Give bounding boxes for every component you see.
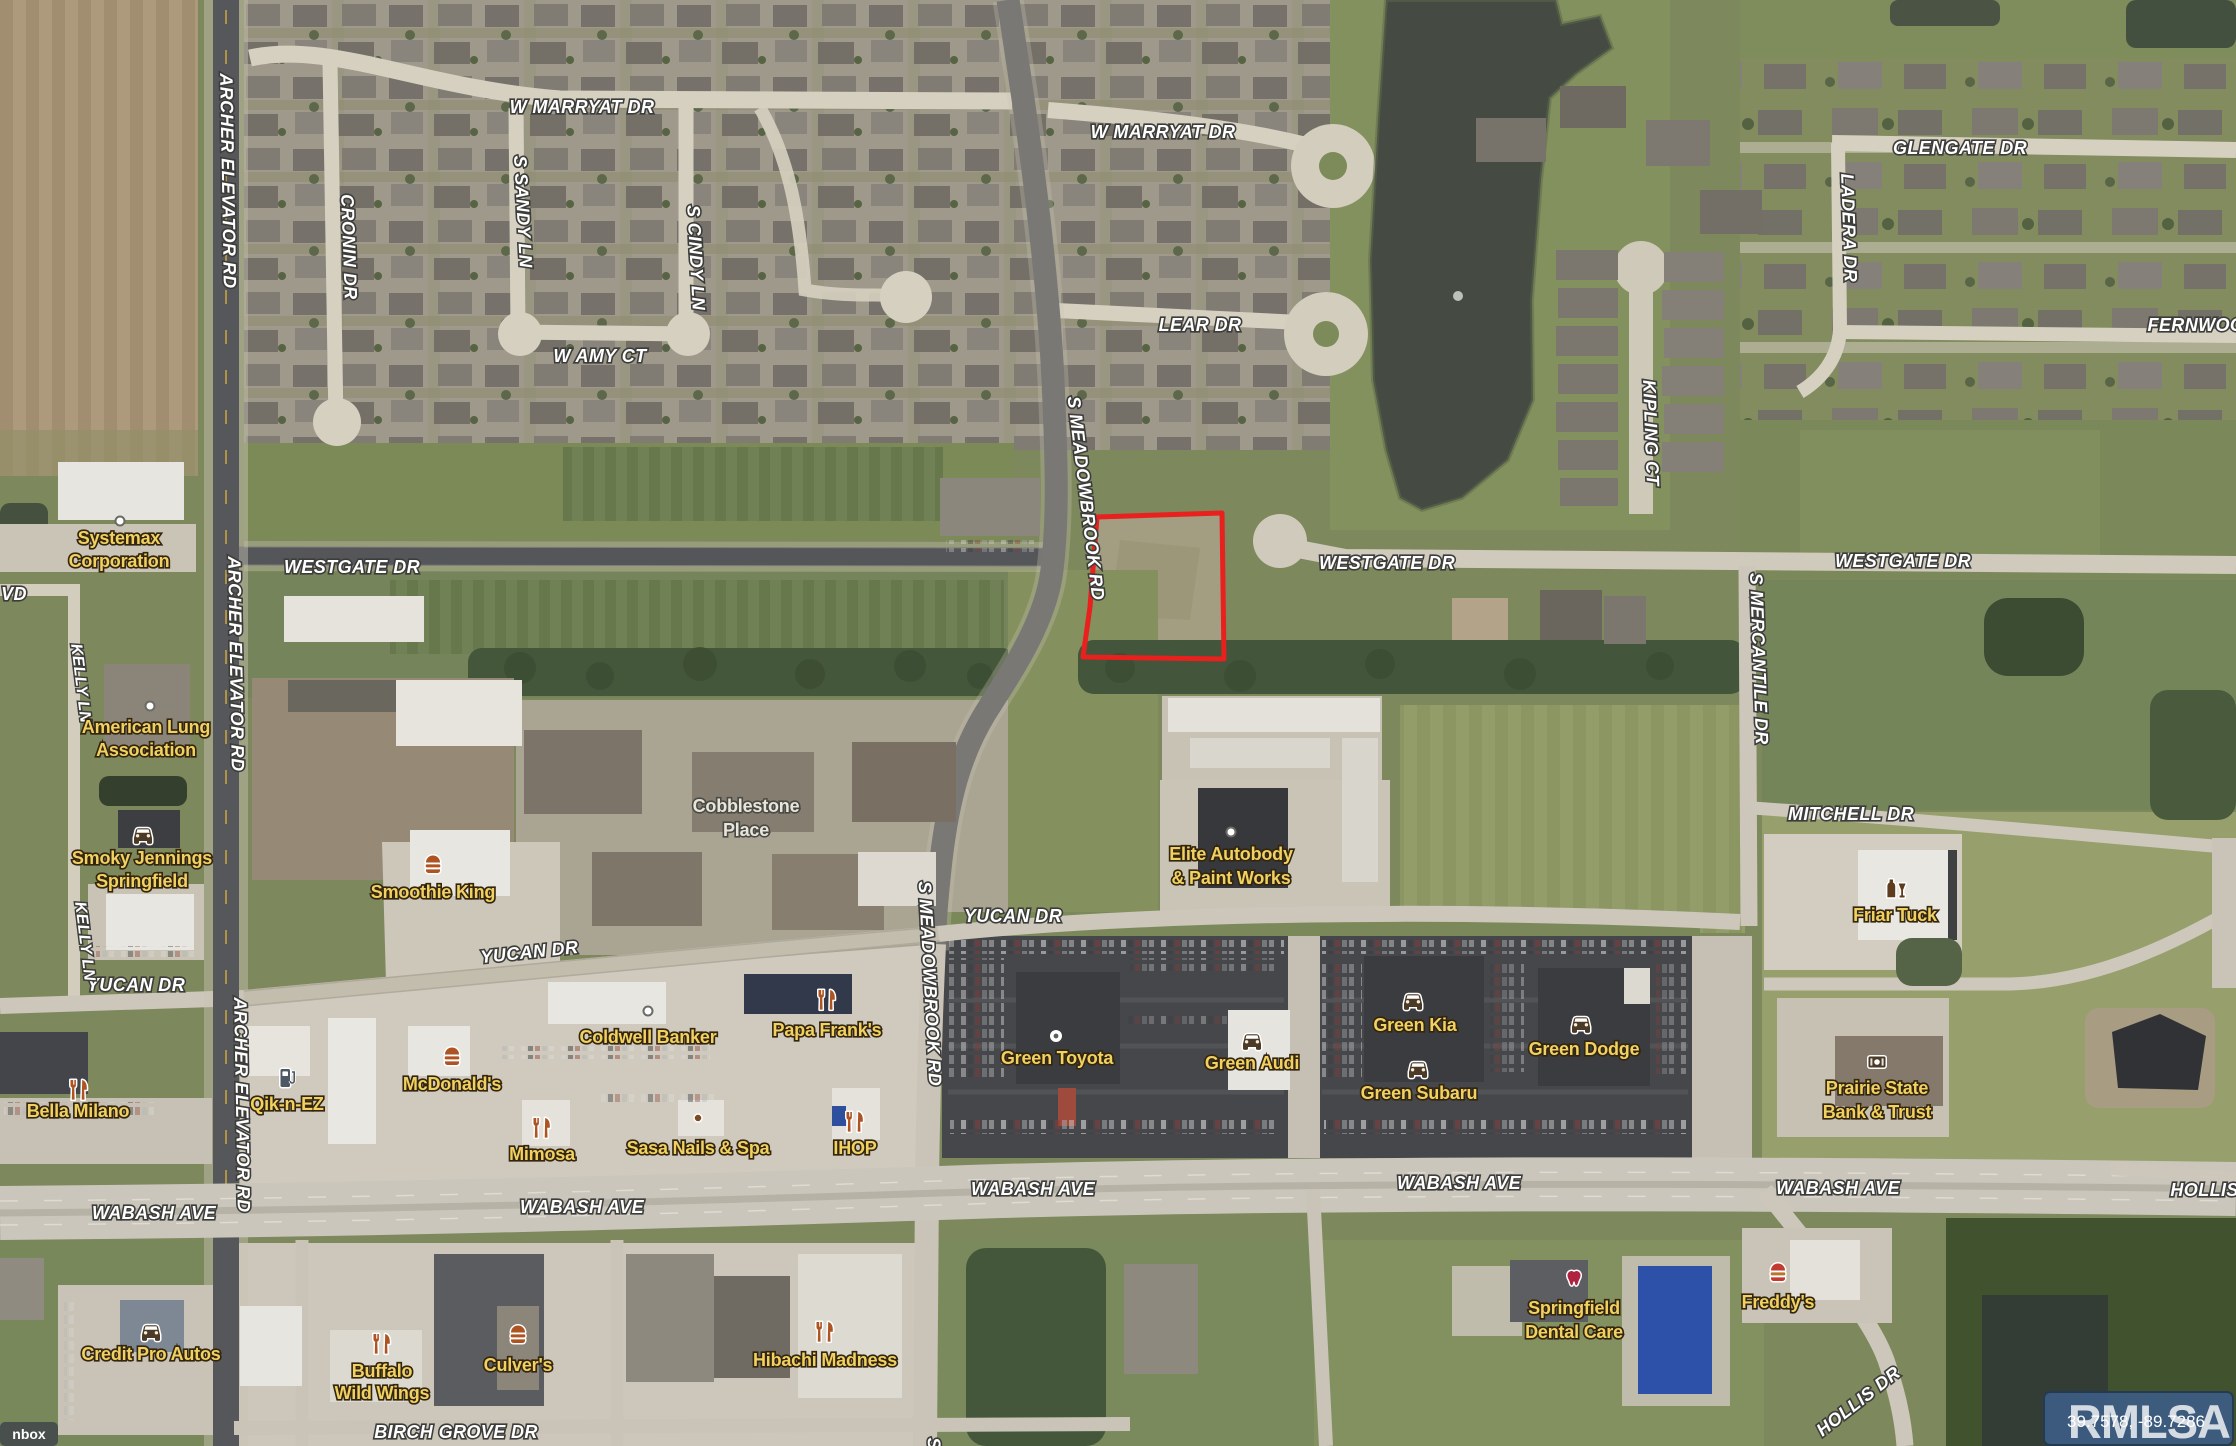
svg-text:WABASH AVE: WABASH AVE (1776, 1178, 1901, 1198)
svg-text:McDonald's: McDonald's (403, 1074, 501, 1094)
svg-text:Qik-n-EZ: Qik-n-EZ (250, 1094, 324, 1114)
svg-text:Wild Wings: Wild Wings (335, 1383, 430, 1403)
svg-text:Buffalo: Buffalo (352, 1361, 413, 1381)
svg-text:Elite Autobody: Elite Autobody (1169, 844, 1293, 864)
svg-text:Smoothie King: Smoothie King (371, 882, 495, 902)
svg-text:W AMY CT: W AMY CT (553, 346, 648, 366)
svg-text:W MARRYAT DR: W MARRYAT DR (1091, 122, 1236, 142)
svg-text:Association: Association (96, 740, 196, 760)
svg-text:Springfield: Springfield (96, 871, 188, 891)
svg-text:nbox: nbox (12, 1426, 46, 1442)
svg-text:YUCAN DR: YUCAN DR (964, 906, 1062, 926)
svg-text:Prairie State: Prairie State (1826, 1078, 1929, 1098)
svg-text:& Paint Works: & Paint Works (1171, 868, 1290, 888)
svg-text:Dental Care: Dental Care (1525, 1322, 1623, 1342)
svg-text:FERNWOOD D: FERNWOOD D (2148, 315, 2236, 335)
svg-text:Papa Frank's: Papa Frank's (773, 1020, 882, 1040)
svg-text:WESTGATE DR: WESTGATE DR (284, 557, 420, 577)
svg-text:LEAR DR: LEAR DR (1159, 315, 1242, 335)
svg-text:HOLLIS D: HOLLIS D (2170, 1180, 2236, 1200)
svg-text:Friar Tuck: Friar Tuck (1853, 905, 1938, 925)
svg-text:Green Kia: Green Kia (1373, 1015, 1457, 1035)
svg-text:ARCHER ELEVATOR RD: ARCHER ELEVATOR RD (216, 72, 240, 289)
svg-text:WABASH AVE: WABASH AVE (971, 1179, 1096, 1199)
svg-text:Hibachi Madness: Hibachi Madness (753, 1350, 897, 1370)
svg-text:LADERA DR: LADERA DR (1837, 173, 1861, 283)
svg-text:KIPLING CT: KIPLING CT (1639, 379, 1663, 487)
svg-text:GLENGATE DR: GLENGATE DR (1893, 138, 2027, 158)
svg-text:Green Audi: Green Audi (1205, 1053, 1299, 1073)
svg-text:W MARRYAT DR: W MARRYAT DR (510, 97, 655, 117)
svg-text:Place: Place (723, 820, 769, 840)
svg-text:Freddy's: Freddy's (1742, 1292, 1815, 1312)
svg-text:WESTGATE DR: WESTGATE DR (1835, 551, 1971, 571)
svg-text:Green Toyota: Green Toyota (1001, 1048, 1114, 1068)
svg-text:IHOP: IHOP (833, 1138, 876, 1158)
svg-text:Mimosa: Mimosa (509, 1144, 576, 1164)
svg-text:YUCAN DR: YUCAN DR (87, 975, 185, 995)
svg-text:Bank & Trust: Bank & Trust (1823, 1102, 1932, 1122)
svg-text:American Lung: American Lung (82, 717, 210, 737)
svg-text:Bella Milano: Bella Milano (27, 1101, 130, 1121)
svg-text:WESTGATE DR: WESTGATE DR (1319, 553, 1455, 573)
svg-text:Culver's: Culver's (484, 1355, 553, 1375)
svg-text:S: S (923, 1436, 944, 1446)
svg-text:ARCHER ELEVATOR RD: ARCHER ELEVATOR RD (224, 555, 248, 772)
svg-text:Credit Pro Autos: Credit Pro Autos (81, 1344, 220, 1364)
svg-text:Springfield: Springfield (1528, 1298, 1620, 1318)
svg-text:Coldwell Banker: Coldwell Banker (579, 1027, 716, 1047)
svg-text:Systemax: Systemax (78, 528, 161, 548)
svg-text:Green Dodge: Green Dodge (1529, 1039, 1640, 1059)
svg-text:WABASH AVE: WABASH AVE (520, 1197, 645, 1217)
svg-text:BIRCH GROVE DR: BIRCH GROVE DR (374, 1422, 538, 1442)
svg-text:CRONIN DR: CRONIN DR (337, 194, 361, 300)
svg-text:WABASH AVE: WABASH AVE (92, 1203, 217, 1223)
svg-text:MITCHELL DR: MITCHELL DR (1788, 804, 1914, 824)
svg-text:39.7578, -89.7286: 39.7578, -89.7286 (2067, 1412, 2205, 1431)
svg-text:WABASH AVE: WABASH AVE (1397, 1173, 1522, 1193)
svg-text:Smoky Jennings: Smoky Jennings (72, 848, 212, 868)
svg-text:Sasa Nails & Spa: Sasa Nails & Spa (627, 1138, 771, 1158)
svg-text:Green Subaru: Green Subaru (1361, 1083, 1478, 1103)
svg-text:VD: VD (1, 584, 27, 604)
svg-text:Corporation: Corporation (69, 551, 170, 571)
svg-text:Cobblestone: Cobblestone (693, 796, 800, 816)
